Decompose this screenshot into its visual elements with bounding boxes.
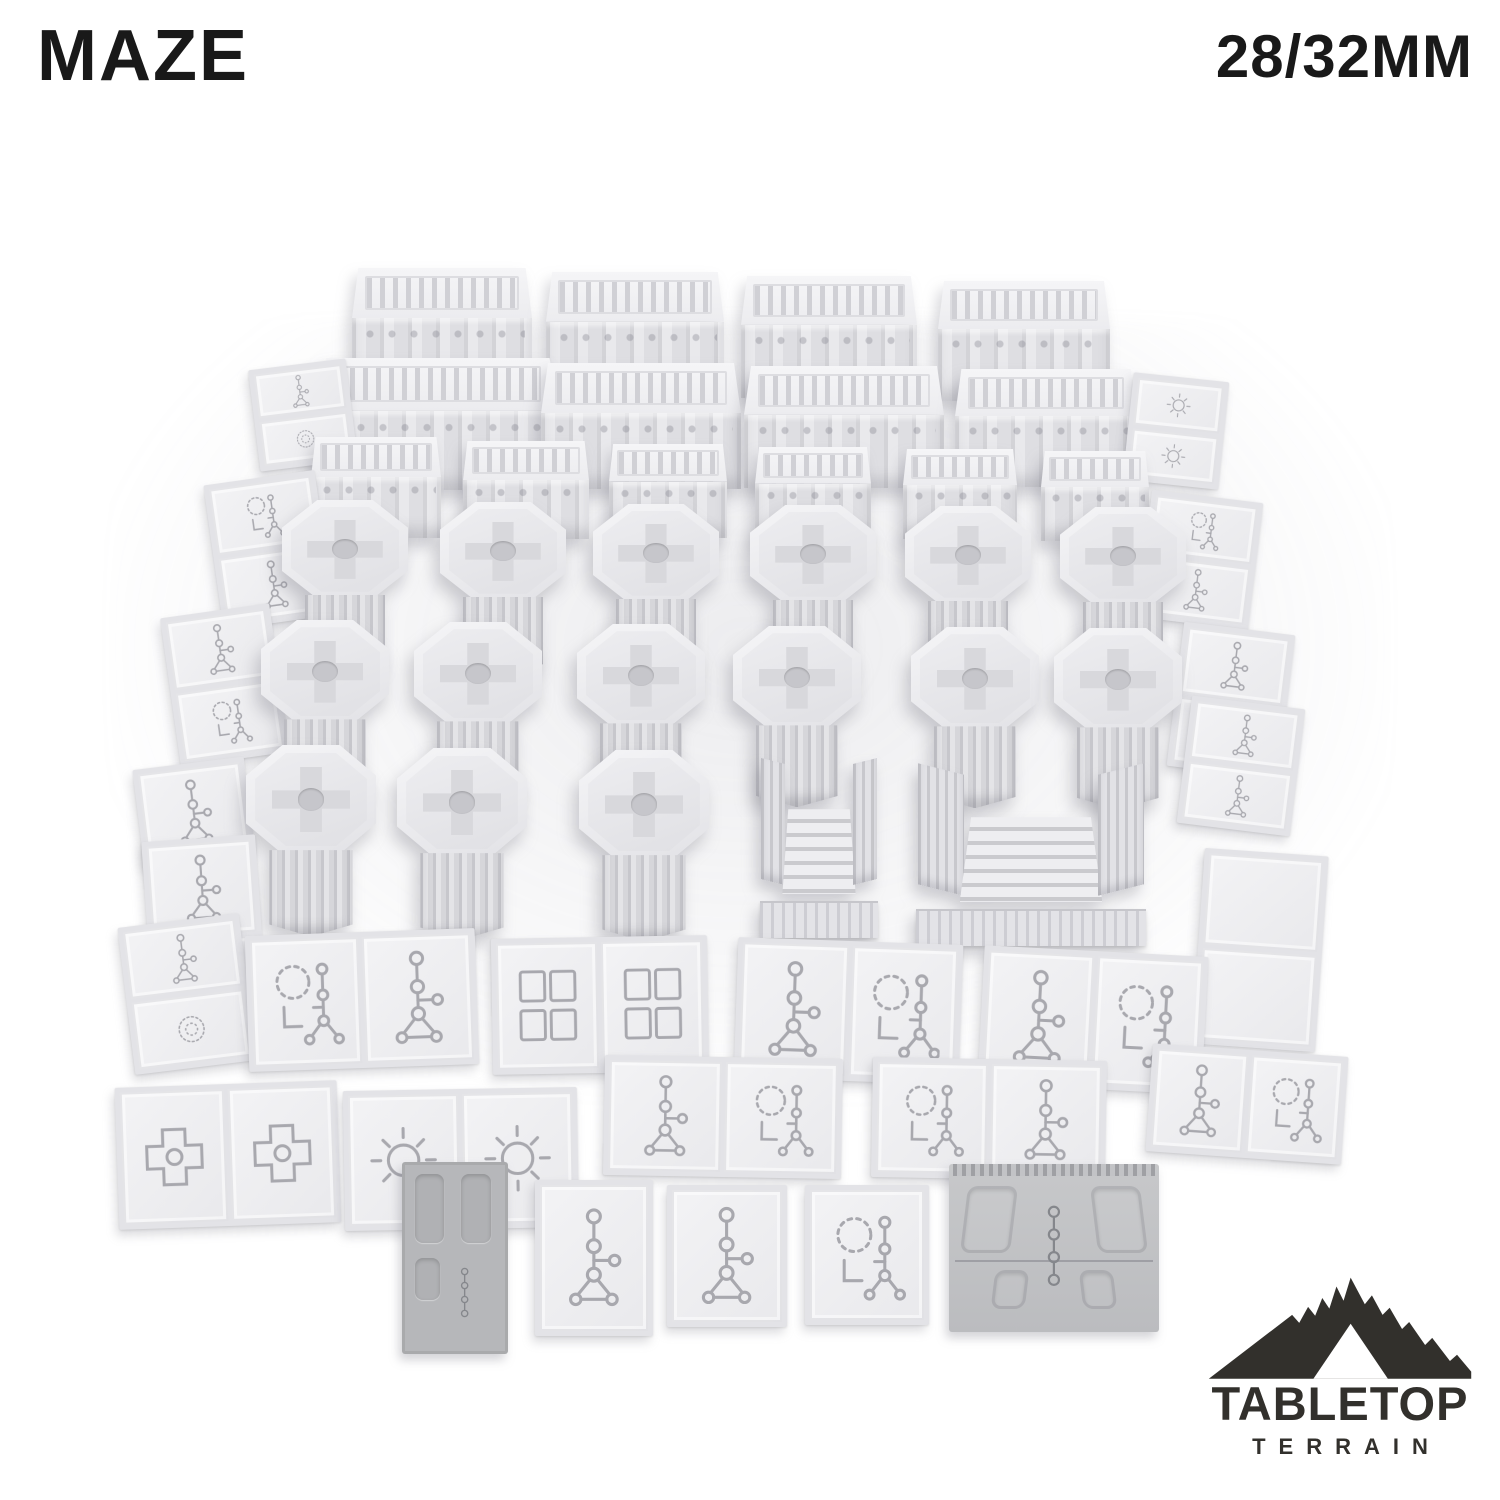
floor-tile: [672, 1190, 782, 1322]
wall-top-face: [546, 272, 724, 322]
wall-crest: [950, 289, 1098, 322]
wall-crest: [320, 443, 432, 470]
wall-arches: [752, 421, 936, 440]
rune-glyph-icon: [1197, 769, 1277, 825]
wall-top-face: [311, 437, 441, 477]
wall-crest: [472, 447, 580, 474]
pillar-body: [420, 853, 503, 939]
pillar-cap: [905, 506, 1031, 605]
tile-chain-detail: [453, 1243, 476, 1347]
tile-chain-detail: [1035, 1174, 1073, 1325]
wreath-glyph-icon: [148, 997, 235, 1061]
wall-crest: [758, 374, 930, 407]
rune-glyph-icon: [555, 1198, 633, 1318]
wall-arches: [962, 422, 1129, 440]
cross-glyph-icon: [135, 1101, 214, 1212]
wall-crest: [365, 276, 520, 310]
wall-top-face: [741, 276, 917, 325]
panels-glyph-icon: [510, 954, 585, 1059]
floor-tile-group: [603, 1055, 843, 1179]
wreath-rune-glyph-icon: [826, 1202, 908, 1309]
floor-tile-group: [667, 1185, 787, 1327]
pillar-cap: [282, 500, 408, 599]
maze-pillar: [579, 750, 709, 938]
printed-floor-tile: [402, 1162, 508, 1354]
pillar-cap: [440, 502, 566, 601]
floor-tile: [724, 1062, 838, 1174]
cross-glyph-icon: [243, 1098, 322, 1209]
mountain-icon: [1207, 1267, 1473, 1384]
wreath-rune-glyph-icon: [863, 958, 943, 1067]
floor-tile: [1197, 948, 1317, 1047]
tile-slot: [1079, 1270, 1117, 1309]
rune-glyph-icon: [687, 1202, 766, 1310]
wall-arches: [945, 335, 1103, 354]
rune-glyph-icon: [754, 954, 834, 1063]
rune-glyph-icon: [998, 963, 1079, 1072]
floor-tile: [540, 1185, 648, 1331]
stair-base: [916, 909, 1146, 946]
pillar-cap: [593, 504, 719, 603]
rune-glyph-icon: [1205, 708, 1285, 764]
floor-tile-group: [117, 913, 256, 1075]
wall-arches: [328, 417, 549, 438]
wall-crest: [558, 280, 711, 314]
floor-tile: [120, 1089, 229, 1225]
tile-slot: [960, 1186, 1019, 1253]
sun-glyph-icon: [1141, 434, 1207, 479]
pillar-cap: [261, 620, 389, 723]
wall-crest: [617, 450, 719, 476]
wall-arches: [549, 419, 733, 439]
floor-tile: [132, 989, 251, 1069]
pillar-cap: [733, 626, 861, 729]
wall-top-face: [903, 449, 1017, 485]
floor-tile: [739, 942, 849, 1076]
chain-glyph-icon: [1035, 1174, 1073, 1325]
pillar-body: [602, 855, 685, 941]
stair-wall-left: [761, 758, 785, 885]
floor-tile: [1182, 762, 1292, 831]
wall-arches: [316, 482, 436, 498]
floor-tile: [250, 937, 362, 1067]
wreath-rune-glyph-icon: [190, 688, 269, 753]
stair-steps: [960, 817, 1103, 902]
floor-tile-group: [1145, 1043, 1348, 1164]
floor-tile-group: [805, 1185, 929, 1325]
wall-top-face: [541, 363, 741, 413]
wall-top-face: [744, 366, 944, 415]
wall-crest: [968, 377, 1125, 409]
floor-tile-group: [491, 935, 709, 1075]
wall-top-face: [955, 369, 1137, 416]
floor-tile-group: [1177, 696, 1306, 837]
floor-tile: [254, 364, 347, 418]
floor-tile: [608, 1060, 722, 1172]
panels-glyph-icon: [615, 952, 690, 1057]
wall-arches: [359, 324, 525, 344]
pillar-cap: [246, 745, 376, 854]
floor-tile: [601, 940, 704, 1068]
maze-pillar: [246, 745, 376, 933]
wall-top-face: [318, 358, 558, 411]
wall-crest: [763, 453, 863, 478]
pillar-cap: [414, 622, 542, 725]
wall-arches: [614, 486, 723, 501]
tile-slot: [415, 1174, 445, 1243]
floor-tile: [1151, 1049, 1249, 1153]
pillar-cap: [750, 505, 876, 604]
wall-crest: [911, 455, 1009, 480]
wreath-rune-glyph-icon: [740, 1072, 822, 1164]
stair-wall-right: [1098, 764, 1144, 897]
rune-glyph-icon: [1196, 635, 1275, 697]
brand-subtitle: TERRAIN: [1207, 1434, 1473, 1460]
pillar-cap: [397, 748, 527, 857]
wall-crest: [335, 366, 541, 402]
wall-crest: [1049, 457, 1142, 482]
pillar-cap: [911, 627, 1039, 730]
brand-logo: TABLETOP TERRAIN: [1207, 1267, 1473, 1460]
tile-slot: [991, 1270, 1029, 1309]
floor-tile: [1181, 627, 1290, 704]
rune-glyph-icon: [377, 945, 458, 1051]
stair-wall-left: [918, 764, 964, 897]
floor-tile-group: [1191, 848, 1328, 1052]
tile-slot: [461, 1174, 491, 1243]
floor-tile-group: [535, 1180, 653, 1336]
wall-arches: [760, 488, 867, 502]
pillar-cap: [1060, 507, 1186, 606]
floor-tile-group: [115, 1080, 342, 1230]
wall-top-face: [938, 281, 1110, 329]
wall-top-face: [352, 268, 532, 318]
brand-name: TABLETOP: [1207, 1380, 1473, 1427]
floor-tile: [1190, 701, 1300, 770]
floor-tile: [1203, 853, 1323, 952]
stair-wall-right: [853, 758, 877, 885]
rune-glyph-icon: [1006, 1074, 1087, 1166]
rune-glyph-icon: [1164, 1058, 1235, 1143]
rune-glyph-icon: [180, 617, 259, 682]
floor-tile: [166, 609, 274, 690]
tile-slot: [1090, 1186, 1149, 1253]
wreath-rune-glyph-icon: [892, 1072, 973, 1164]
wall-top-face: [755, 447, 871, 484]
maze-pillar: [397, 748, 527, 936]
floor-tile: [228, 1085, 337, 1221]
floor-tile-group: [871, 1057, 1107, 1181]
stair-gate: [916, 762, 1146, 946]
wreath-rune-glyph-icon: [265, 949, 346, 1055]
pillar-cap: [1054, 628, 1182, 731]
floor-tile: [496, 942, 599, 1070]
rune-glyph-icon: [624, 1070, 706, 1162]
floor-tile: [876, 1062, 988, 1174]
floor-tile-group: [245, 928, 480, 1072]
chain-glyph-icon: [453, 1243, 476, 1347]
wall-crest: [555, 371, 727, 405]
floor-tile: [1133, 378, 1223, 434]
pillar-body: [269, 850, 352, 936]
rune-glyph-icon: [266, 369, 333, 413]
stair-base: [760, 901, 878, 938]
tile-slot: [415, 1258, 440, 1300]
wall-arches: [1045, 491, 1144, 505]
wall-top-face: [1041, 451, 1149, 487]
wall-arches: [553, 328, 717, 347]
pillar-cap: [579, 750, 709, 859]
wall-top-face: [463, 441, 589, 480]
rune-glyph-icon: [139, 927, 226, 991]
wreath-rune-glyph-icon: [1259, 1065, 1330, 1150]
floor-tile: [810, 1190, 924, 1320]
floor-tile: [1246, 1055, 1344, 1159]
floor-tile: [990, 1064, 1102, 1176]
stair-steps: [782, 809, 855, 894]
wall-arches: [748, 331, 910, 350]
pillar-cap: [577, 624, 705, 727]
wall-arches: [468, 485, 584, 500]
wall-top-face: [609, 444, 727, 482]
wall-crest: [753, 284, 904, 317]
product-photo-canvas: { "header": { "title": "MAZE", "scale_la…: [0, 0, 1500, 1500]
stair-gate: [760, 754, 878, 938]
sun-glyph-icon: [1146, 383, 1212, 428]
floor-tile: [123, 919, 242, 999]
wall-arches: [908, 489, 1013, 503]
hatch-floor-tile: [949, 1164, 1159, 1332]
floor-tile: [362, 933, 474, 1063]
